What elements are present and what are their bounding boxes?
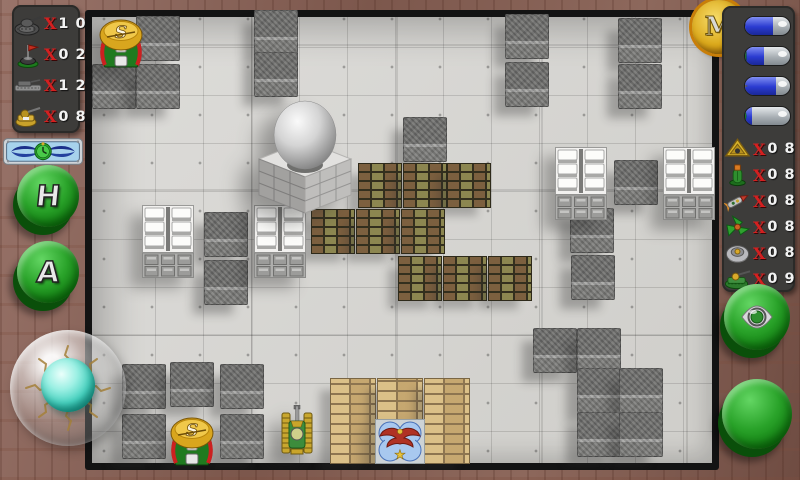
winged-clock-icon — [3, 137, 83, 166]
counter-value: 0 8 — [767, 141, 795, 157]
stone-block — [403, 117, 447, 162]
svg-text:S: S — [115, 23, 127, 43]
weapon-gauge — [744, 16, 791, 36]
svg-text:★: ★ — [394, 447, 406, 462]
winged-clock-plaque — [3, 137, 83, 166]
brick-wall — [488, 256, 532, 301]
counter-value: 0 9 — [767, 271, 795, 287]
medkit-icon — [744, 46, 748, 66]
counter-value: 0 8 — [58, 109, 86, 125]
x-mark: X — [753, 218, 765, 237]
enemy-spawner: S — [95, 16, 147, 70]
x-mark: X — [753, 166, 765, 185]
apc-icon — [14, 73, 42, 99]
h-button-label: H — [34, 179, 62, 213]
brick-wall — [311, 209, 355, 254]
gauge-fill — [745, 17, 773, 35]
stone-block — [577, 328, 621, 373]
board-items-layer: S S ★ — [92, 17, 712, 463]
eagle-base: ★ — [375, 419, 425, 464]
enemy-tank-icon — [14, 11, 42, 37]
stone-block — [254, 52, 298, 97]
counter-row: X1 2 — [12, 70, 80, 101]
counter-value: 0 2 — [58, 47, 86, 63]
silver-ring-icon — [739, 302, 775, 332]
right-control-panel: M X0 8X0 8X0 8X0 8X0 8X0 9 — [719, 0, 800, 480]
stone-block — [204, 260, 248, 305]
gun-turret-icon — [14, 104, 42, 130]
brick-wall — [356, 209, 400, 254]
fire-button[interactable] — [722, 379, 792, 449]
stone-block — [170, 362, 214, 407]
white-bunker — [254, 205, 306, 278]
stone-block — [122, 414, 166, 459]
base-brick-wall — [424, 378, 470, 464]
x-mark: X — [44, 14, 56, 33]
brick-wall — [403, 163, 447, 208]
triangle-device-icon — [724, 136, 751, 162]
base-brick-wall — [330, 378, 376, 464]
revolver-icon — [744, 16, 748, 36]
counter-value: 0 8 — [767, 245, 795, 261]
stone-block — [505, 62, 549, 107]
counter-value: 0 8 — [767, 193, 795, 209]
brick-wall — [447, 163, 491, 208]
counter-row: X0 8 — [722, 136, 795, 162]
gauge-shine — [778, 51, 787, 57]
counter-value: 1 0 — [58, 16, 86, 32]
counter-row: X0 8 — [722, 214, 795, 240]
white-bunker — [142, 205, 194, 278]
brick-wall — [358, 163, 402, 208]
dome-structure — [257, 95, 353, 215]
player-tank — [281, 405, 313, 457]
counter-row: X0 2 — [12, 39, 80, 70]
stone-block — [92, 64, 136, 109]
stone-block — [204, 212, 248, 257]
x-mark: X — [44, 45, 56, 64]
ammo-counter-panel: X0 8X0 8X0 8X0 8X0 8X0 9 — [722, 136, 795, 292]
stone-block — [136, 64, 180, 109]
gauge-shine — [778, 21, 787, 27]
gauge-fill — [745, 77, 776, 95]
gauge-shine — [778, 111, 787, 117]
weapon-gauge — [744, 106, 791, 126]
x-mark: X — [753, 244, 765, 263]
joystick-ball[interactable] — [41, 358, 95, 412]
stone-block — [577, 412, 621, 457]
counter-row: X1 0 — [12, 8, 80, 39]
weapon-gauges — [722, 16, 795, 126]
counter-value: 0 8 — [767, 219, 795, 235]
counter-row: X0 8 — [722, 188, 795, 214]
stone-block — [122, 364, 166, 409]
tank-game-screen: S S ★ X1 0X0 2X1 2X0 8 — [0, 0, 800, 480]
stone-block — [220, 414, 264, 459]
target-icon — [744, 106, 748, 126]
stone-block — [619, 368, 663, 413]
x-mark: X — [753, 192, 765, 211]
weapons-panel: X0 8X0 8X0 8X0 8X0 8X0 9 — [722, 6, 795, 292]
stone-block — [577, 368, 621, 413]
x-mark: X — [753, 140, 765, 159]
a-button-label: A — [35, 255, 61, 289]
counter-row: X0 8 — [12, 101, 80, 132]
h-button[interactable]: H — [17, 165, 79, 227]
brick-wall — [401, 209, 445, 254]
rocket-icon — [724, 188, 751, 214]
enemy-counter-panel: X1 0X0 2X1 2X0 8 — [12, 5, 80, 133]
left-control-panel: X1 0X0 2X1 2X0 8 H A — [0, 0, 85, 480]
tri-star-icon — [724, 214, 751, 240]
brick-wall — [443, 256, 487, 301]
grenade-icon — [724, 162, 751, 188]
weapon-gauge — [744, 76, 791, 96]
svg-text:S: S — [186, 421, 198, 441]
counter-value: 0 8 — [767, 167, 795, 183]
brick-wall — [398, 256, 442, 301]
stone-block — [614, 160, 658, 205]
flag-base-icon — [14, 42, 42, 68]
stone-block — [618, 18, 662, 63]
white-bunker — [663, 147, 715, 220]
a-button[interactable]: A — [17, 241, 79, 303]
stone-block — [619, 412, 663, 457]
white-bunker — [555, 147, 607, 220]
mine-disc-icon — [724, 240, 751, 266]
weapon-gauge — [744, 46, 791, 66]
counter-value: 1 2 — [58, 78, 86, 94]
enemy-spawner: S — [166, 414, 218, 468]
joystick[interactable] — [10, 330, 126, 446]
stone-block — [254, 10, 298, 55]
counter-row: X0 8 — [722, 162, 795, 188]
spike-mine-icon — [744, 76, 748, 96]
counter-row: X0 8 — [722, 240, 795, 266]
x-mark: X — [44, 107, 56, 126]
stone-block — [220, 364, 264, 409]
game-board: S S ★ — [85, 10, 719, 470]
stone-block — [571, 255, 615, 300]
ring-button[interactable] — [724, 284, 790, 350]
gauge-shine — [778, 81, 787, 87]
x-mark: X — [44, 76, 56, 95]
stone-block — [505, 14, 549, 59]
stone-block — [618, 64, 662, 109]
stone-block — [533, 328, 577, 373]
base-brick-wall — [377, 378, 423, 421]
